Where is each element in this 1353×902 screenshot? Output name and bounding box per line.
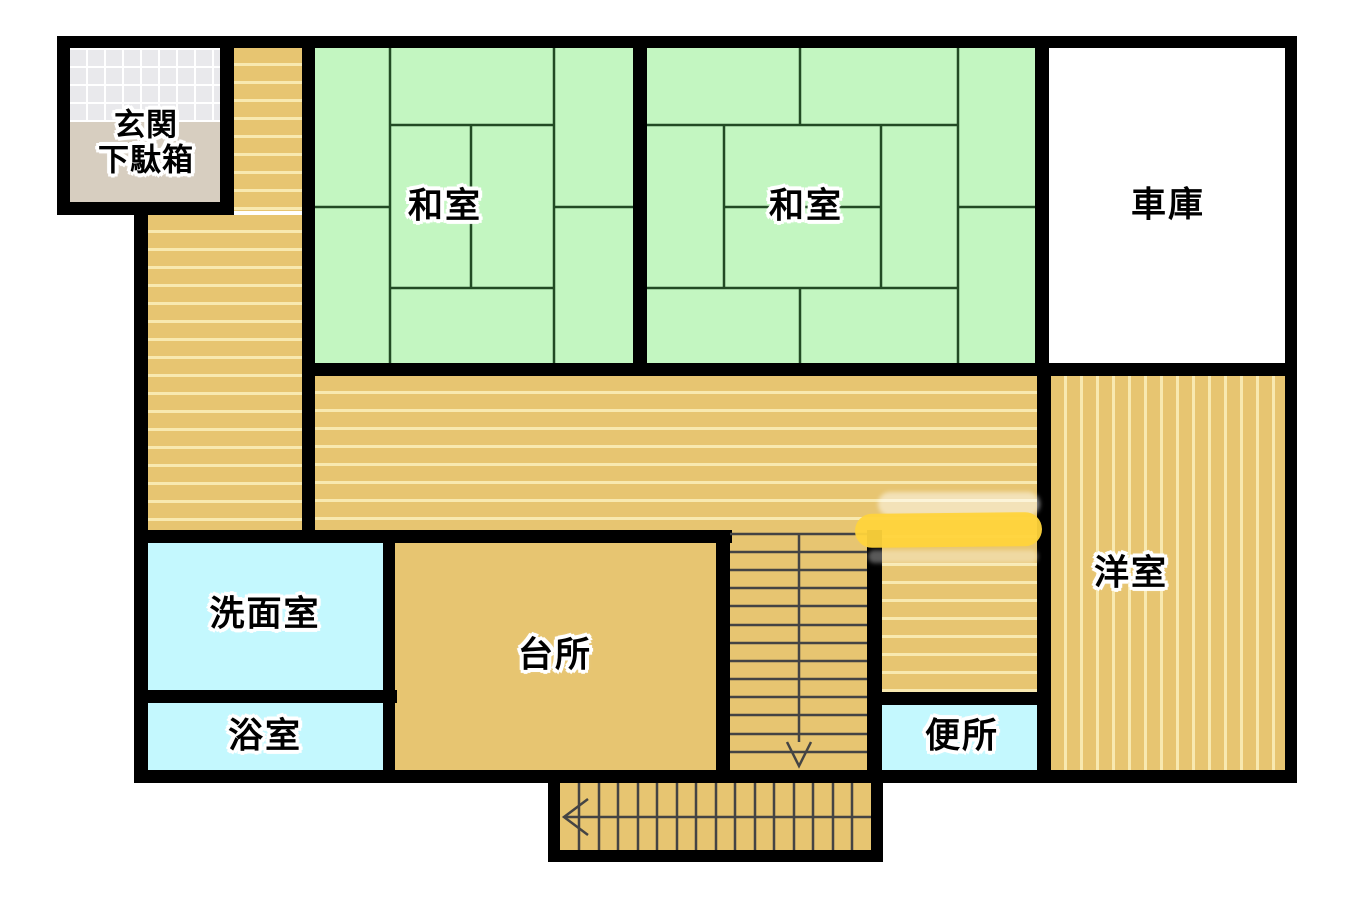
wall-washroom-bath-divider bbox=[134, 690, 397, 703]
room-label-kitchen: 台所 bbox=[518, 635, 592, 674]
internal-staircase-floor bbox=[730, 530, 867, 770]
room-label-genkan-line2: 下駄箱 bbox=[98, 143, 194, 178]
room-label-washitsu-2: 和室 bbox=[769, 186, 843, 225]
wall-genkan-hall-divider bbox=[220, 36, 234, 215]
wall-washitsu2-garage bbox=[1035, 36, 1049, 376]
wall-ext-stairs-bottom bbox=[548, 850, 883, 862]
hallway-top-strip-floor bbox=[234, 48, 302, 211]
wall-stairs-right bbox=[867, 530, 882, 783]
external-staircase-floor bbox=[560, 783, 871, 850]
wall-right bbox=[1285, 36, 1297, 783]
marker-smear-bottom bbox=[868, 550, 1038, 563]
room-label-genkan-line1: 玄関 bbox=[98, 108, 194, 143]
floor-plan: 玄関 下駄箱 和室 和室 車庫 洗面室 浴室 台所 便所 洋室 bbox=[0, 0, 1353, 902]
wall-washitsu-divider bbox=[633, 36, 647, 376]
yellow-highlight-marker bbox=[855, 512, 1042, 548]
wall-garage-bottom bbox=[1035, 363, 1297, 376]
wall-tatami-bottom bbox=[302, 363, 1051, 376]
room-label-washroom: 洗面室 bbox=[209, 594, 320, 633]
wall-kitchen-left bbox=[383, 530, 395, 783]
room-label-youshitsu: 洋室 bbox=[1094, 553, 1168, 592]
wall-bottom bbox=[134, 770, 1297, 783]
hallway-left-floor bbox=[148, 215, 302, 530]
room-label-washitsu-1: 和室 bbox=[408, 186, 482, 225]
wall-kitchen-top bbox=[134, 530, 732, 543]
wall-hall-washitsu1 bbox=[302, 36, 315, 543]
room-label-bathroom: 浴室 bbox=[228, 716, 302, 755]
room-label-toilet: 便所 bbox=[925, 716, 999, 755]
wall-stairs-left bbox=[716, 530, 730, 783]
wall-toilet-top bbox=[867, 692, 1037, 705]
room-label-genkan: 玄関 下駄箱 bbox=[98, 108, 194, 177]
room-label-garage: 車庫 bbox=[1131, 185, 1205, 224]
wall-youshitsu-left bbox=[1037, 376, 1051, 783]
storage-nook-floor bbox=[882, 548, 1037, 692]
wall-genkan-left bbox=[57, 36, 70, 215]
wall-top bbox=[57, 36, 1297, 48]
